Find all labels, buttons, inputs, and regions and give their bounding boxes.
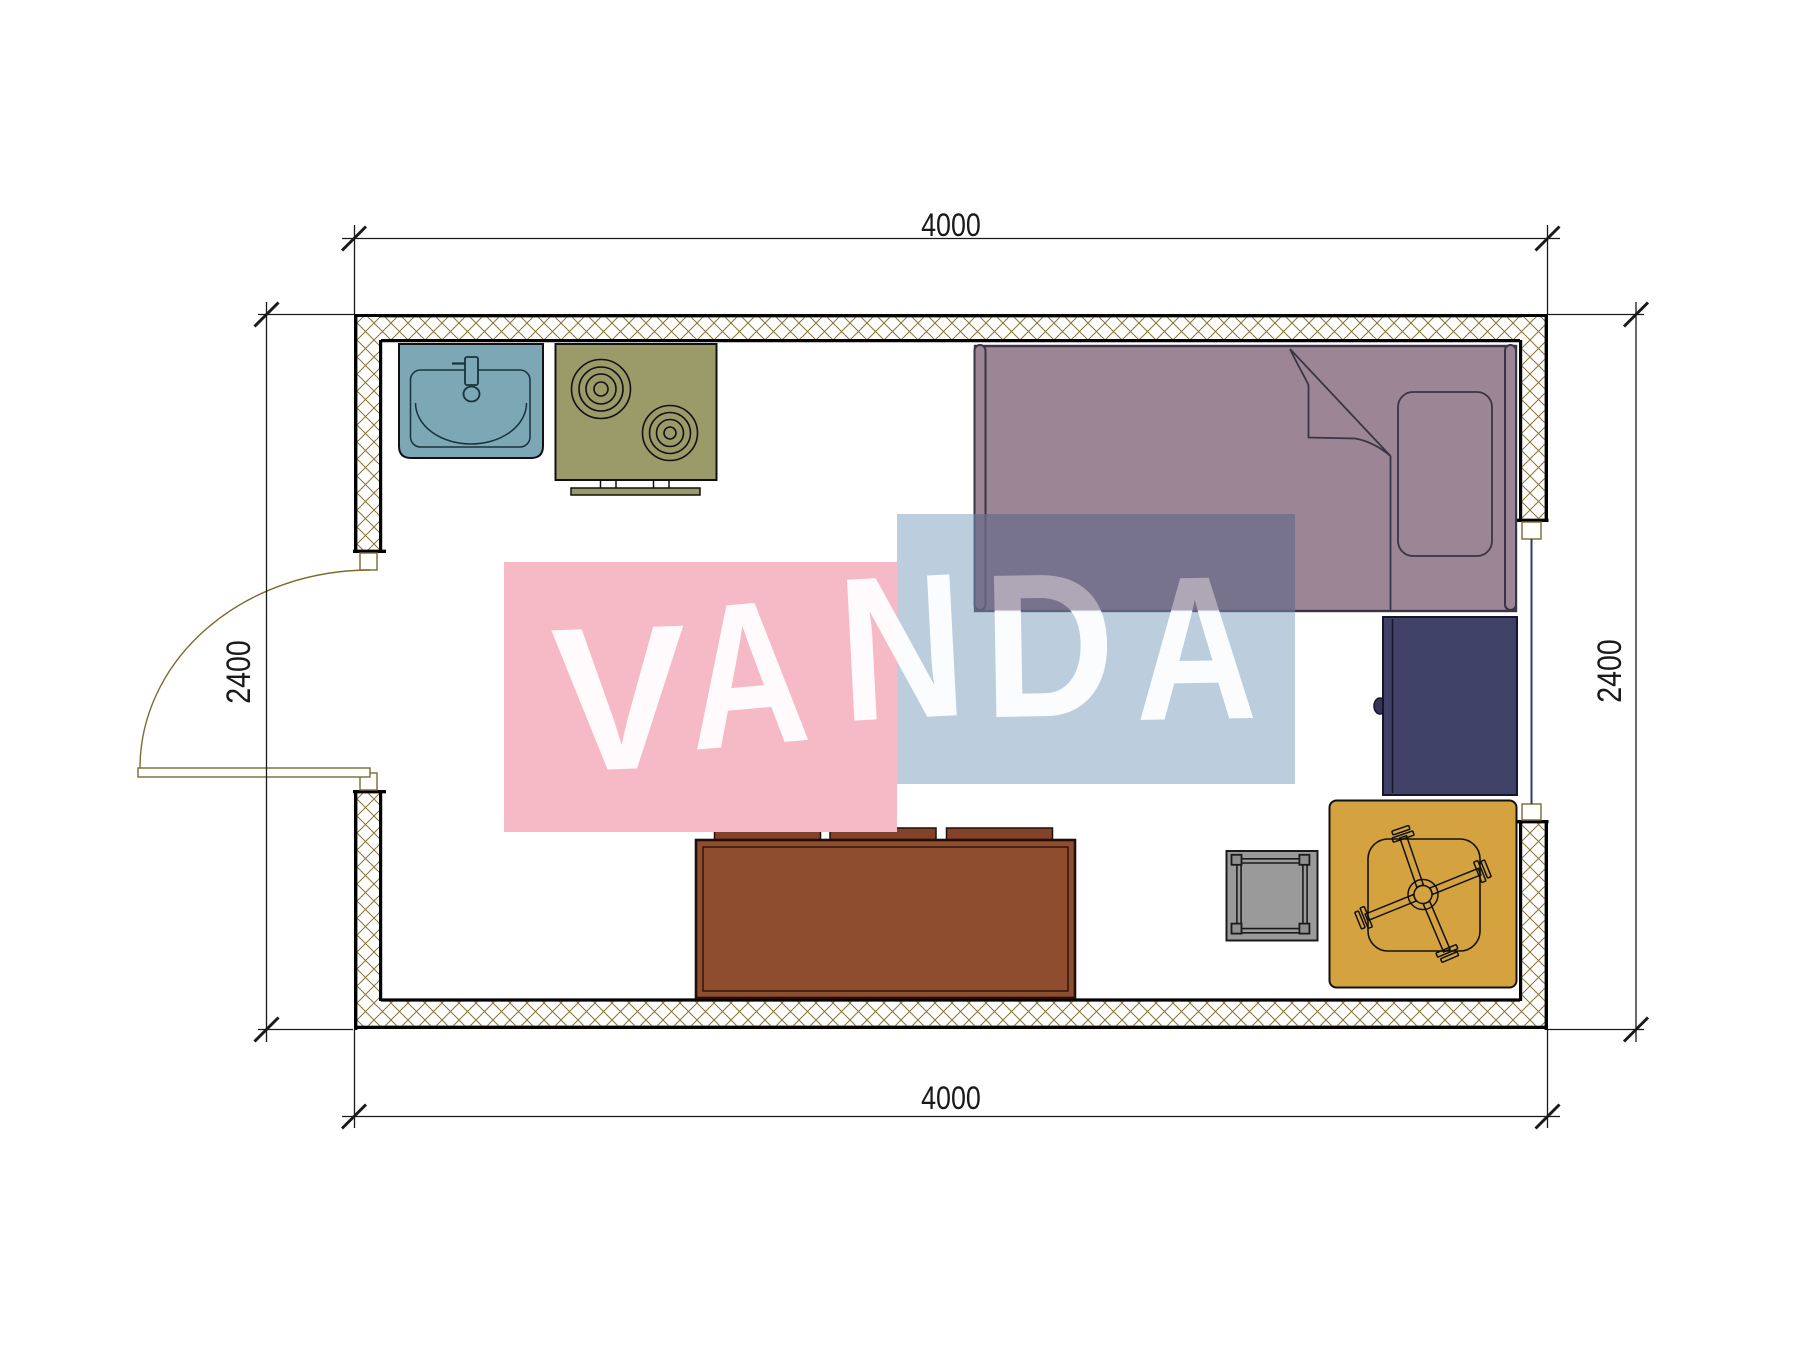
svg-text:4000: 4000 — [921, 208, 981, 244]
svg-text:4000: 4000 — [921, 1081, 981, 1117]
svg-text:V: V — [548, 582, 691, 815]
svg-text:N: N — [833, 531, 971, 766]
svg-text:A: A — [677, 554, 816, 793]
svg-text:2400: 2400 — [1591, 639, 1629, 703]
svg-text:2400: 2400 — [220, 640, 258, 704]
